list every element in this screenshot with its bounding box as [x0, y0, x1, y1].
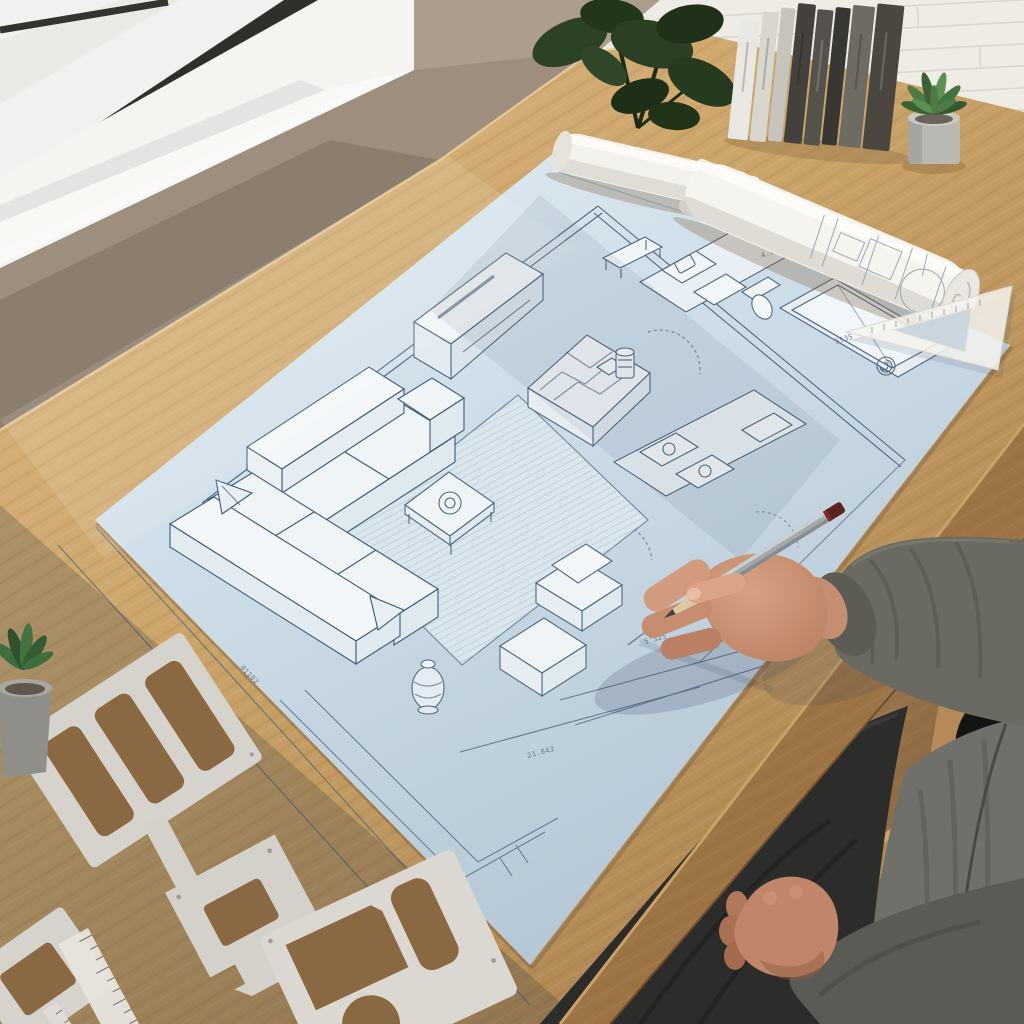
architect-desk-scene: 4.325 5535 5'325 21.043 01102: [0, 0, 1024, 1024]
scene-canvas: 4.325 5535 5'325 21.043 01102: [0, 0, 1024, 1024]
succulent-pot: [900, 71, 968, 174]
